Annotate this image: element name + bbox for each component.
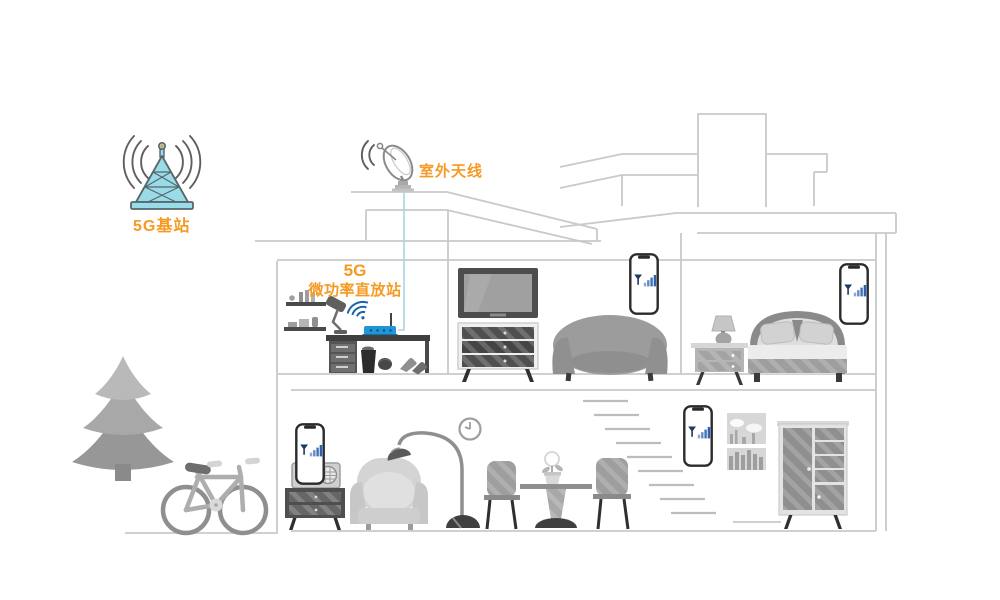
smartphone-signal-icon-bedroom bbox=[840, 264, 867, 323]
shoes bbox=[400, 358, 427, 375]
wardrobe bbox=[777, 421, 849, 529]
smartphone-signal-icon-groundfloor-left bbox=[296, 424, 323, 483]
dish-waves-icon bbox=[362, 141, 374, 169]
wifi-router-icon bbox=[362, 313, 398, 338]
tree bbox=[72, 356, 174, 481]
table-lamp bbox=[712, 316, 735, 346]
nightstand bbox=[691, 343, 748, 385]
ball bbox=[378, 358, 392, 370]
repeater-label: 5G 微功率直放站 bbox=[293, 261, 417, 299]
picture-frame bbox=[727, 413, 766, 470]
dining-chair-right bbox=[593, 458, 631, 529]
desk-lamp bbox=[325, 295, 347, 334]
bed bbox=[748, 311, 847, 382]
chimney bbox=[698, 114, 766, 207]
smartphone-signal-icon-stairs bbox=[684, 406, 711, 465]
sofa bbox=[552, 315, 667, 381]
radio-cabinet bbox=[285, 488, 345, 530]
dining-chair-left bbox=[484, 461, 520, 529]
repeater-label-line2: 微功率直放站 bbox=[293, 282, 417, 299]
bicycle bbox=[163, 457, 266, 533]
repeater-label-line1: 5G bbox=[293, 261, 417, 281]
wall-clock bbox=[460, 419, 481, 440]
trash-can bbox=[361, 347, 376, 374]
5g-base-station-tower-icon bbox=[131, 143, 193, 209]
tv-icon bbox=[458, 268, 538, 318]
flower-pot bbox=[541, 452, 564, 486]
satellite-dish-icon bbox=[377, 141, 418, 192]
outdoor-antenna-label: 室外天线 bbox=[419, 163, 483, 180]
house-illustration-svg bbox=[0, 0, 1000, 600]
dining-table bbox=[520, 484, 592, 528]
base-station-label: 5G基站 bbox=[133, 218, 190, 236]
illustration-stage: 5G基站 室外天线 5G 微功率直放站 bbox=[0, 0, 1000, 600]
armchair bbox=[350, 458, 428, 530]
wifi-waves-icon bbox=[345, 298, 374, 324]
desk bbox=[326, 335, 430, 373]
smartphone-signal-icon-livingroom bbox=[630, 254, 657, 313]
